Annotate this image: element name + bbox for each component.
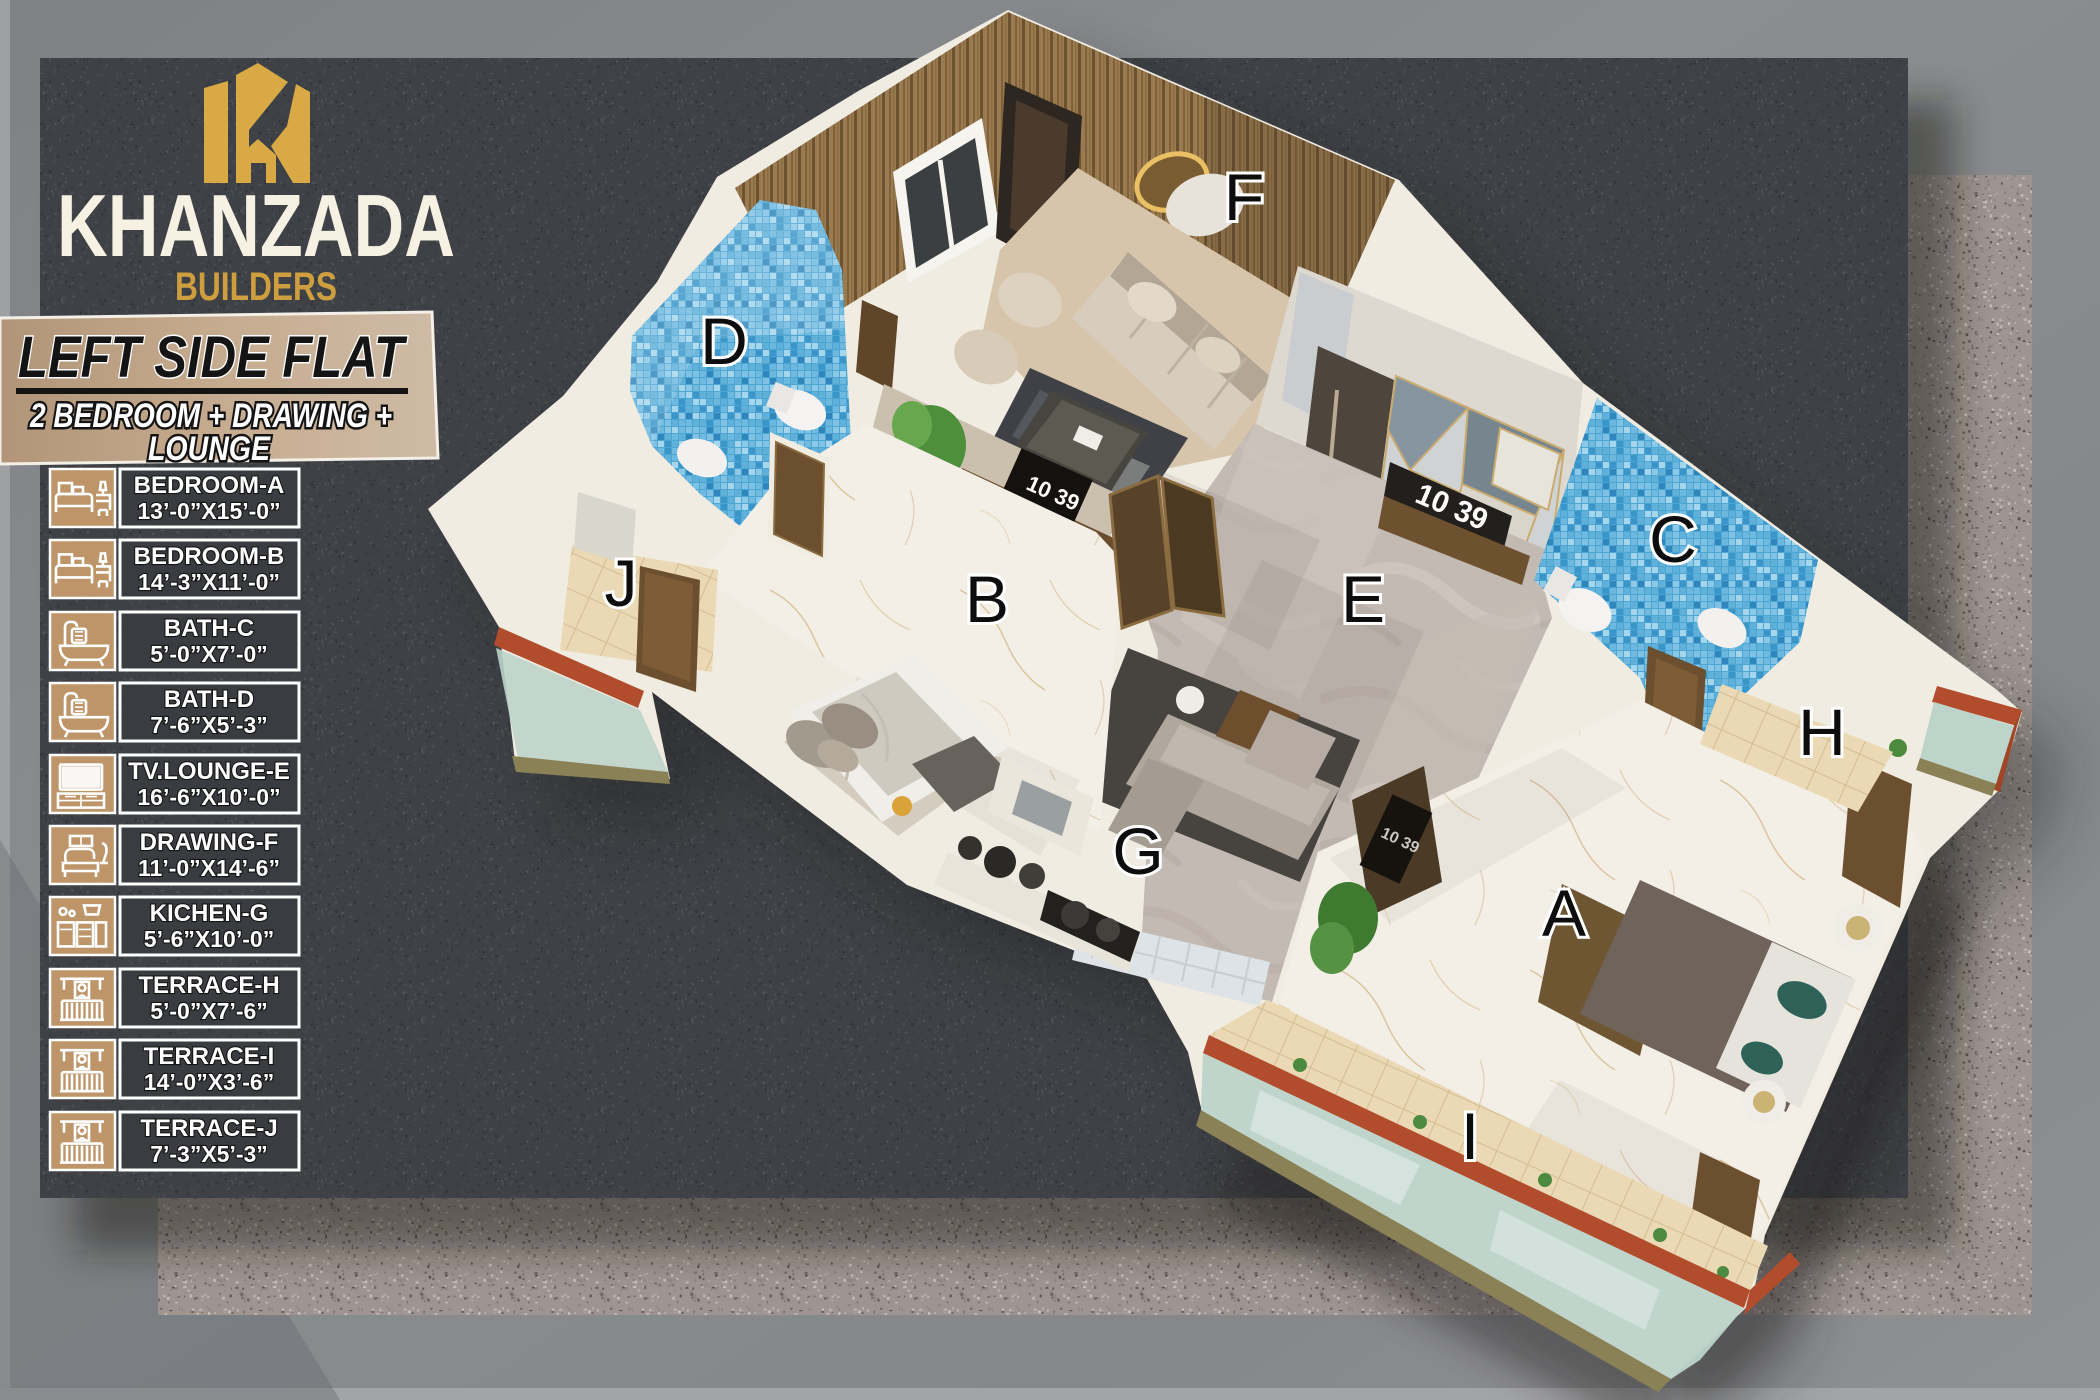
svg-text:BATH-D: BATH-D: [164, 686, 254, 713]
svg-text:16’-6”X10’-0”: 16’-6”X10’-0”: [137, 784, 280, 810]
svg-text:7’-6”X5’-3”: 7’-6”X5’-3”: [150, 712, 268, 738]
svg-text:TERRACE-H: TERRACE-H: [138, 972, 279, 999]
svg-text:14’-3”X11’-0”: 14’-3”X11’-0”: [138, 569, 280, 595]
svg-text:BEDROOM-B: BEDROOM-B: [134, 543, 285, 570]
svg-text:C: C: [1649, 502, 1697, 576]
svg-text:KICHEN-G: KICHEN-G: [150, 900, 269, 927]
svg-text:TV.LOUNGE-E: TV.LOUNGE-E: [128, 758, 290, 785]
svg-text:H: H: [1798, 695, 1846, 769]
svg-text:11’-0”X14’-6”: 11’-0”X14’-6”: [138, 855, 280, 881]
svg-text:TERRACE-J: TERRACE-J: [140, 1115, 277, 1142]
svg-text:TERRACE-I: TERRACE-I: [144, 1043, 275, 1070]
svg-text:F: F: [1224, 160, 1264, 234]
svg-text:E: E: [1341, 562, 1385, 636]
svg-text:J: J: [605, 546, 638, 620]
svg-text:A: A: [1542, 876, 1586, 950]
svg-text:G: G: [1112, 814, 1163, 888]
svg-text:5’-0”X7’-0”: 5’-0”X7’-0”: [150, 641, 268, 667]
svg-text:5’-0”X7’-6”: 5’-0”X7’-6”: [150, 998, 268, 1024]
svg-text:BATH-C: BATH-C: [164, 615, 254, 642]
svg-text:14’-0”X3’-6”: 14’-0”X3’-6”: [144, 1069, 274, 1095]
svg-text:LEFT SIDE FLAT: LEFT SIDE FLAT: [18, 325, 408, 390]
svg-text:BUILDERS: BUILDERS: [175, 265, 337, 309]
svg-text:I: I: [1461, 1099, 1479, 1173]
svg-text:B: B: [965, 562, 1009, 636]
svg-text:DRAWING-F: DRAWING-F: [140, 829, 279, 856]
svg-text:BEDROOM-A: BEDROOM-A: [134, 472, 285, 499]
svg-text:KHANZADA: KHANZADA: [57, 176, 455, 275]
svg-text:D: D: [700, 304, 748, 378]
svg-text:7’-3”X5’-3”: 7’-3”X5’-3”: [150, 1141, 268, 1167]
svg-text:13’-0”X15’-0”: 13’-0”X15’-0”: [137, 498, 280, 524]
svg-text:5’-6”X10’-0”: 5’-6”X10’-0”: [144, 926, 274, 952]
svg-text:LOUNGE: LOUNGE: [148, 430, 271, 468]
